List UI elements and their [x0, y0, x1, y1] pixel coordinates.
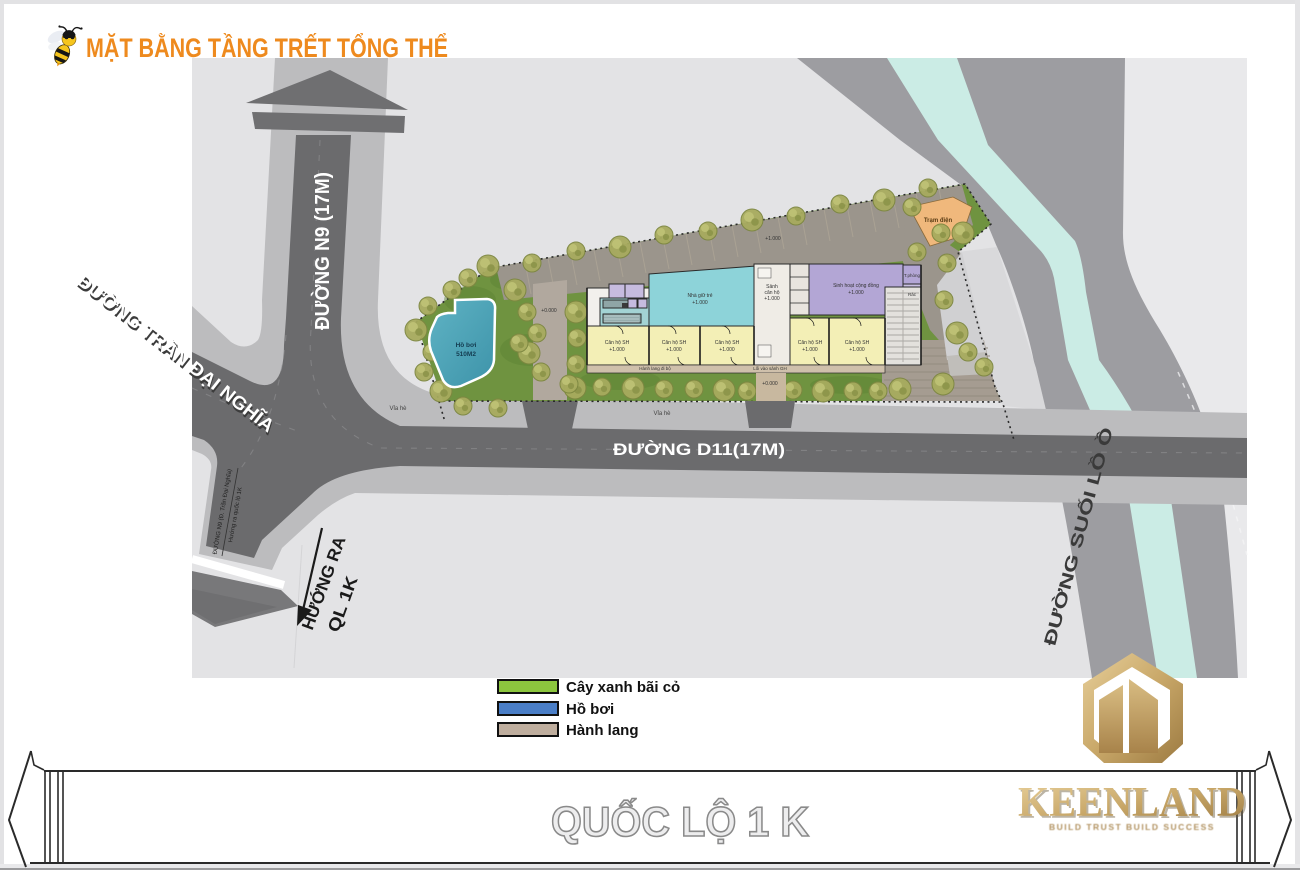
svg-text:510M2: 510M2: [456, 351, 476, 358]
svg-text:+1.000: +1.000: [666, 347, 682, 353]
svg-text:Nhà giữ trẻ: Nhà giữ trẻ: [687, 293, 712, 299]
svg-text:Hành lang đi bộ: Hành lang đi bộ: [639, 366, 671, 371]
svg-text:Cây xanh bãi cỏ: Cây xanh bãi cỏ: [566, 679, 680, 696]
svg-text:+1.000: +1.000: [764, 296, 780, 302]
svg-text:Căn hộ SH: Căn hộ SH: [605, 340, 630, 346]
svg-text:Căn hộ SH: Căn hộ SH: [845, 340, 870, 346]
svg-text:Căn hộ SH: Căn hộ SH: [798, 340, 823, 346]
svg-text:Căn hộ SH: Căn hộ SH: [715, 340, 740, 346]
svg-text:BUILD TRUST BUILD SUCCESS: BUILD TRUST BUILD SUCCESS: [1049, 822, 1215, 832]
svg-text:+1.000: +1.000: [849, 347, 865, 353]
svg-text:+0.000: +0.000: [762, 381, 778, 387]
svg-text:Vỉa hè: Vỉa hè: [389, 405, 407, 412]
svg-text:ĐƯỜNG N9 (17M): ĐƯỜNG N9 (17M): [310, 172, 334, 330]
svg-text:Hồ bơi: Hồ bơi: [456, 340, 477, 349]
svg-text:+1.000: +1.000: [848, 290, 864, 296]
svg-text:+1.000: +1.000: [609, 347, 625, 353]
svg-text:Vỉa hè: Vỉa hè: [653, 410, 671, 417]
svg-text:Trạm điện: Trạm điện: [924, 218, 953, 224]
svg-text:+1.000: +1.000: [719, 347, 735, 353]
svg-text:Sinh hoạt cộng đồng: Sinh hoạt cộng đồng: [833, 283, 879, 289]
svg-text:KEENLAND: KEENLAND: [1018, 780, 1246, 826]
svg-text:Hành lang: Hành lang: [566, 722, 639, 739]
svg-text:MẶT BẰNG TẦNG TRẾT TỔNG THỂ: MẶT BẰNG TẦNG TRẾT TỔNG THỂ: [86, 32, 448, 63]
svg-text:Rác: Rác: [908, 292, 917, 297]
svg-text:Hồ bơi: Hồ bơi: [566, 701, 614, 718]
svg-text:+0.000: +0.000: [541, 308, 557, 314]
svg-text:+1.000: +1.000: [802, 347, 818, 353]
svg-text:Lối vào sảnh GH: Lối vào sảnh GH: [753, 366, 787, 371]
svg-text:+1.000: +1.000: [765, 236, 781, 242]
svg-text:+1.000: +1.000: [692, 300, 708, 306]
svg-text:Căn hộ SH: Căn hộ SH: [662, 340, 687, 346]
svg-text:QUỐC LỘ 1 K: QUỐC LỘ 1 K: [551, 797, 809, 845]
svg-text:T.phòng: T.phòng: [904, 273, 921, 278]
svg-text:ĐƯỜNG D11(17M): ĐƯỜNG D11(17M): [613, 440, 785, 459]
